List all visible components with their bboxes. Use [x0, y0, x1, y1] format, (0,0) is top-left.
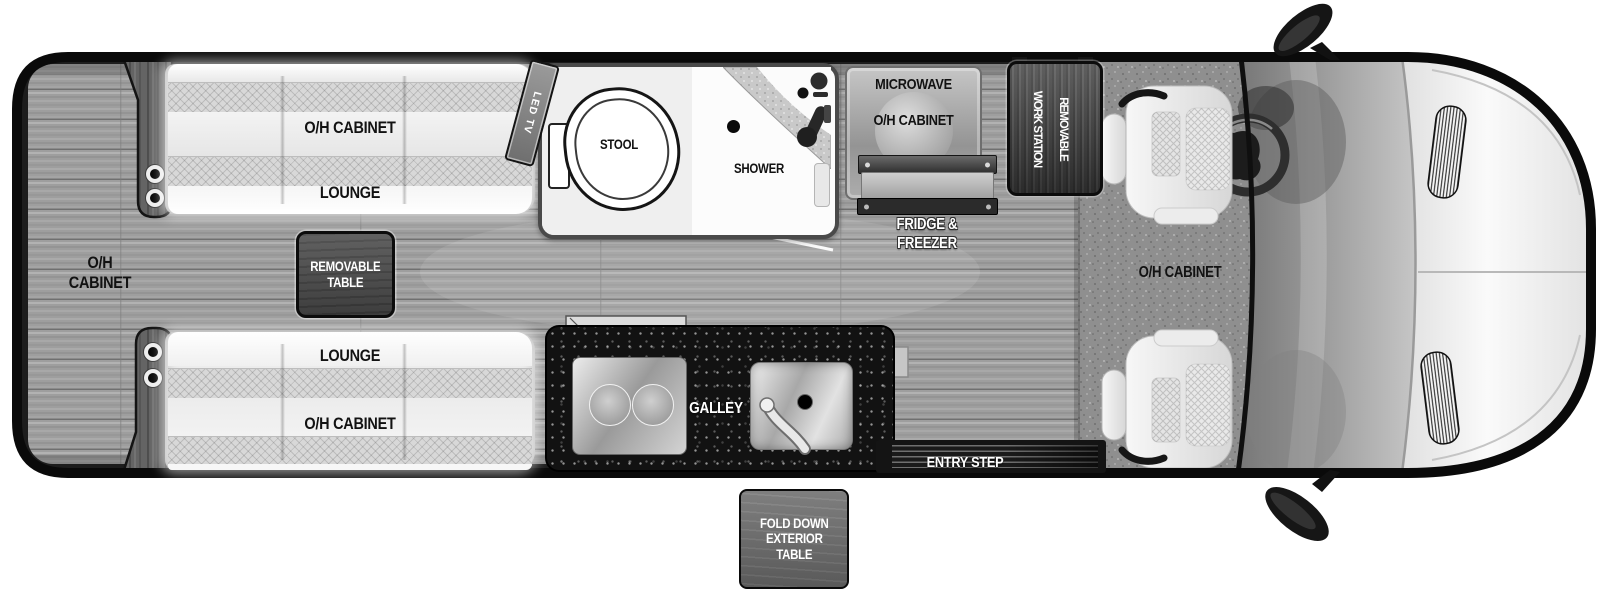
lounge-top-backrest: [168, 82, 532, 114]
lounge-top-shelf: [168, 64, 532, 82]
lounge-bottom-lounge-label: LOUNGE: [193, 346, 508, 366]
burner-icon: [589, 384, 631, 426]
lounge-bottom-cushion: [168, 368, 532, 400]
led-tv-label: LED TV: [521, 91, 544, 136]
fridge-drawer-body: [861, 172, 994, 200]
rv-floorplan: O/H CABINET O/H CABINET LOUNGE LOUNGE O/…: [0, 0, 1600, 592]
galley-counter: GALLEY: [547, 327, 893, 470]
lounge-top-cabinet-label: O/H CABINET: [193, 118, 508, 138]
entry-step-label: ENTRY STEP: [910, 454, 1021, 471]
freezer-drawer-handle: [857, 198, 998, 215]
fold-down-exterior-table: FOLD DOWN EXTERIOR TABLE: [739, 489, 849, 589]
lounge-bottom: LOUNGE O/H CABINET: [165, 332, 535, 470]
faucet-icon: [753, 397, 825, 459]
corner-sink: [723, 67, 831, 169]
burner-icon: [632, 384, 674, 426]
galley-label: GALLEY: [685, 400, 748, 418]
cooktop: [572, 357, 687, 455]
toilet: STOOL: [554, 85, 678, 211]
lounge-top-lounge-label: LOUNGE: [193, 183, 508, 203]
lounge-top: O/H CABINET LOUNGE: [165, 64, 535, 214]
removable-table: REMOVABLE TABLE: [296, 231, 395, 318]
fridge-freezer-label: FRIDGE & FREEZER: [868, 216, 987, 254]
microwave-label: MICROWAVE: [857, 76, 970, 93]
bathroom: STOOL SHOWER: [538, 63, 839, 239]
lounge-bottom-cabinet-label: O/H CABINET: [193, 414, 508, 434]
microwave-cabinet-label: O/H CABINET: [857, 112, 970, 129]
removable-work-station: REMOVABLE WORK STATION: [1007, 61, 1103, 196]
cab-oh-cabinet-label: O/H CABINET: [1127, 264, 1232, 282]
lounge-bottom-backrest: [168, 436, 532, 466]
rear-oh-cabinet-label: O/H CABINET: [49, 253, 151, 292]
bathroom-shelf: [814, 163, 830, 207]
stool-label: STOOL: [572, 137, 666, 153]
galley-sink: [750, 362, 853, 450]
side-mirror-icon: [1257, 470, 1340, 551]
